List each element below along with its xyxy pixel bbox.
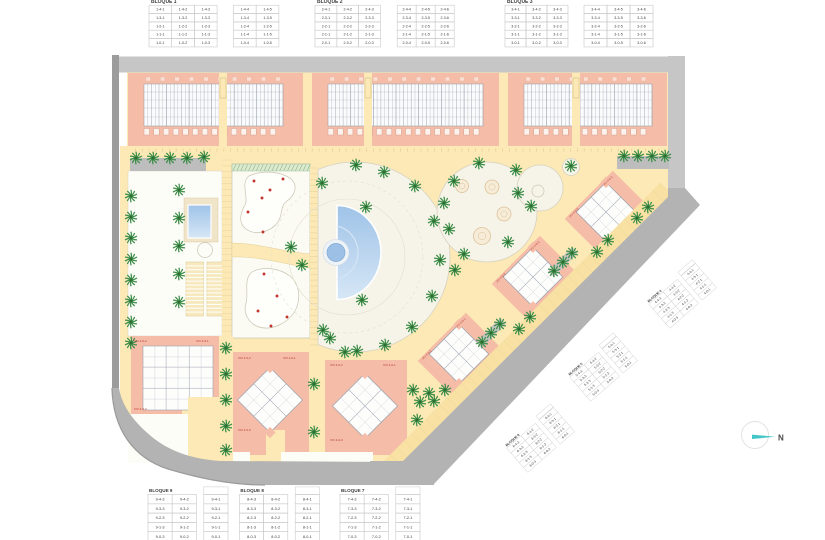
svg-text:1-0-2: 1-0-2: [179, 41, 187, 45]
svg-text:8-2-3: 8-2-3: [247, 516, 256, 520]
svg-text:3-0-3: 3-0-3: [553, 41, 561, 45]
svg-text:9-2-3: 9-2-3: [156, 516, 165, 520]
svg-text:2-2-2: 2-2-2: [344, 24, 352, 28]
svg-text:2-3-1: 2-3-1: [322, 16, 330, 20]
svg-text:2-3-2: 2-3-2: [344, 16, 352, 20]
svg-text:8-2-2: 8-2-2: [271, 516, 280, 520]
svg-text:1-3-3: 1-3-3: [202, 16, 210, 20]
svg-text:BLOQUE 3: BLOQUE 3: [507, 0, 533, 5]
svg-text:N: N: [778, 434, 784, 443]
svg-text:2-0-2: 2-0-2: [344, 41, 352, 45]
svg-text:2-4-1: 2-4-1: [322, 8, 330, 12]
svg-text:9-1-3: 9-1-3: [156, 525, 165, 529]
svg-text:9-3-3: 9-3-3: [156, 507, 165, 511]
svg-text:9-2-2: 9-2-2: [180, 516, 189, 520]
svg-text:1-1-4: 1-1-4: [241, 33, 249, 37]
svg-text:3-4-1: 3-4-1: [511, 8, 519, 12]
svg-text:2-2-6: 2-2-6: [441, 24, 449, 28]
svg-text:VIV 4-0-1: VIV 4-0-1: [383, 363, 396, 367]
svg-text:7-3-1: 7-3-1: [403, 507, 412, 511]
svg-text:1-3-2: 1-3-2: [179, 16, 187, 20]
svg-text:2-1-5: 2-1-5: [422, 33, 430, 37]
svg-text:7-4-1: 7-4-1: [403, 498, 412, 502]
svg-text:3-1-4: 3-1-4: [591, 33, 599, 37]
svg-text:9-1-1: 9-1-1: [211, 525, 220, 529]
svg-text:2-1-6: 2-1-6: [441, 33, 449, 37]
svg-text:9-0-3: 9-0-3: [156, 535, 165, 539]
svg-text:2-1-2: 2-1-2: [344, 33, 352, 37]
svg-text:2-3-3: 2-3-3: [365, 16, 373, 20]
svg-text:8-0-2: 8-0-2: [271, 535, 280, 539]
svg-text:VIV 4-0-1: VIV 4-0-1: [196, 339, 209, 343]
svg-text:3-2-2: 3-2-2: [532, 24, 540, 28]
svg-text:2-2-5: 2-2-5: [422, 24, 430, 28]
svg-text:2-1-1: 2-1-1: [322, 33, 330, 37]
svg-text:2-4-4: 2-4-4: [403, 8, 411, 12]
svg-text:3-4-2: 3-4-2: [532, 8, 540, 12]
svg-text:9-4-3: 9-4-3: [156, 498, 165, 502]
svg-text:1-3-5: 1-3-5: [263, 16, 271, 20]
svg-text:3-2-6: 3-2-6: [637, 24, 645, 28]
svg-text:7-0-1: 7-0-1: [403, 535, 412, 539]
svg-text:1-2-3: 1-2-3: [202, 24, 210, 28]
svg-text:9-3-2: 9-3-2: [180, 507, 189, 511]
svg-text:8-4-3: 8-4-3: [247, 498, 256, 502]
svg-text:3-1-5: 3-1-5: [614, 33, 622, 37]
svg-text:7-4-2: 7-4-2: [372, 498, 381, 502]
svg-text:8-1-2: 8-1-2: [271, 525, 280, 529]
svg-text:1-3-1: 1-3-1: [156, 16, 164, 20]
svg-text:3-0-1: 3-0-1: [511, 41, 519, 45]
svg-text:2-3-4: 2-3-4: [403, 16, 411, 20]
svg-text:8-0-1: 8-0-1: [303, 535, 312, 539]
svg-text:2-4-6: 2-4-6: [441, 8, 449, 12]
svg-text:2-4-3: 2-4-3: [365, 8, 373, 12]
svg-text:2-2-3: 2-2-3: [365, 24, 373, 28]
svg-text:1-0-3: 1-0-3: [202, 41, 210, 45]
svg-text:8-2-1: 8-2-1: [303, 516, 312, 520]
svg-text:2-2-1: 2-2-1: [322, 24, 330, 28]
svg-text:1-3-4: 1-3-4: [241, 16, 249, 20]
svg-text:3-0-2: 3-0-2: [532, 41, 540, 45]
svg-text:2-0-6: 2-0-6: [441, 41, 449, 45]
svg-text:1-1-2: 1-1-2: [179, 33, 187, 37]
svg-text:3-4-6: 3-4-6: [637, 8, 645, 12]
svg-text:BLOQUE 2: BLOQUE 2: [317, 0, 343, 5]
svg-text:7-0-2: 7-0-2: [372, 535, 381, 539]
svg-text:2-0-1: 2-0-1: [322, 41, 330, 45]
svg-text:VIV 4-0-0: VIV 4-0-0: [238, 428, 251, 432]
svg-text:2-0-4: 2-0-4: [403, 41, 411, 45]
svg-text:1-1-5: 1-1-5: [263, 33, 271, 37]
svg-text:3-3-6: 3-3-6: [637, 16, 645, 20]
svg-text:1-4-3: 1-4-3: [202, 8, 210, 12]
svg-text:1-1-3: 1-1-3: [202, 33, 210, 37]
svg-text:3-3-4: 3-3-4: [591, 16, 599, 20]
svg-text:1-4-5: 1-4-5: [263, 8, 271, 12]
svg-text:8-0-3: 8-0-3: [247, 535, 256, 539]
svg-text:3-1-6: 3-1-6: [637, 33, 645, 37]
svg-text:3-0-4: 3-0-4: [591, 41, 599, 45]
svg-text:VIV 4-0-2: VIV 4-0-2: [330, 363, 343, 367]
svg-text:2-2-4: 2-2-4: [403, 24, 411, 28]
svg-text:3-0-5: 3-0-5: [614, 41, 622, 45]
svg-text:8-1-1: 8-1-1: [303, 525, 312, 529]
svg-text:3-2-5: 3-2-5: [614, 24, 622, 28]
svg-text:8-3-2: 8-3-2: [271, 507, 280, 511]
svg-text:2-3-6: 2-3-6: [441, 16, 449, 20]
svg-text:3-2-1: 3-2-1: [511, 24, 519, 28]
svg-text:3-1-1: 3-1-1: [511, 33, 519, 37]
svg-text:VIV 4-0-3: VIV 4-0-3: [134, 407, 147, 411]
svg-text:9-0-2: 9-0-2: [180, 535, 189, 539]
svg-text:9-1-2: 9-1-2: [180, 525, 189, 529]
svg-text:8-4-2: 8-4-2: [271, 498, 280, 502]
svg-text:8-3-3: 8-3-3: [247, 507, 256, 511]
svg-text:9-4-1: 9-4-1: [211, 498, 220, 502]
svg-text:2-3-5: 2-3-5: [422, 16, 430, 20]
svg-text:3-2-4: 3-2-4: [591, 24, 599, 28]
svg-text:1-0-1: 1-0-1: [156, 41, 164, 45]
svg-text:2-4-5: 2-4-5: [422, 8, 430, 12]
svg-text:BLOQUE 8: BLOQUE 8: [240, 488, 264, 493]
svg-text:3-3-3: 3-3-3: [553, 16, 561, 20]
svg-text:1-2-2: 1-2-2: [179, 24, 187, 28]
svg-text:8-1-3: 8-1-3: [247, 525, 256, 529]
svg-text:2-4-2: 2-4-2: [344, 8, 352, 12]
svg-text:1-2-4: 1-2-4: [241, 24, 249, 28]
svg-text:1-0-5: 1-0-5: [263, 41, 271, 45]
svg-text:7-2-3: 7-2-3: [348, 516, 357, 520]
svg-text:3-2-3: 3-2-3: [553, 24, 561, 28]
svg-text:1-0-4: 1-0-4: [241, 41, 249, 45]
svg-text:7-2-1: 7-2-1: [403, 516, 412, 520]
svg-text:3-4-5: 3-4-5: [614, 8, 622, 12]
svg-text:1-4-4: 1-4-4: [241, 8, 249, 12]
svg-text:7-4-3: 7-4-3: [348, 498, 357, 502]
svg-text:9-3-1: 9-3-1: [211, 507, 220, 511]
svg-text:3-4-3: 3-4-3: [553, 8, 561, 12]
svg-text:3-4-4: 3-4-4: [591, 8, 599, 12]
svg-text:9-2-1: 9-2-1: [211, 516, 220, 520]
svg-text:2-0-5: 2-0-5: [422, 41, 430, 45]
svg-text:9-0-1: 9-0-1: [211, 535, 220, 539]
svg-text:8-3-1: 8-3-1: [303, 507, 312, 511]
svg-text:2-1-3: 2-1-3: [365, 33, 373, 37]
svg-text:7-1-2: 7-1-2: [372, 525, 381, 529]
svg-text:8-4-1: 8-4-1: [303, 498, 312, 502]
svg-text:1-1-1: 1-1-1: [156, 33, 164, 37]
svg-text:VIV 4-0-2: VIV 4-0-2: [134, 339, 147, 343]
svg-text:1-4-2: 1-4-2: [179, 8, 187, 12]
svg-text:1-2-5: 1-2-5: [263, 24, 271, 28]
svg-text:7-1-3: 7-1-3: [348, 525, 357, 529]
svg-text:1-2-1: 1-2-1: [156, 24, 164, 28]
svg-text:2-0-3: 2-0-3: [365, 41, 373, 45]
svg-text:7-1-1: 7-1-1: [403, 525, 412, 529]
svg-text:7-2-2: 7-2-2: [372, 516, 381, 520]
svg-text:3-0-6: 3-0-6: [637, 41, 645, 45]
svg-text:3-3-2: 3-3-2: [532, 16, 540, 20]
svg-text:7-3-3: 7-3-3: [348, 507, 357, 511]
svg-text:3-3-5: 3-3-5: [614, 16, 622, 20]
svg-text:VIV 4-0-3: VIV 4-0-3: [330, 438, 343, 442]
svg-text:7-3-2: 7-3-2: [372, 507, 381, 511]
svg-text:3-1-3: 3-1-3: [553, 33, 561, 37]
svg-text:2-1-4: 2-1-4: [403, 33, 411, 37]
svg-text:VIV 4-0-1: VIV 4-0-1: [283, 356, 296, 360]
svg-text:3-3-1: 3-3-1: [511, 16, 519, 20]
svg-text:VIV 4-0-2: VIV 4-0-2: [238, 356, 251, 360]
svg-text:9-4-2: 9-4-2: [180, 498, 189, 502]
svg-text:BLOQUE 7: BLOQUE 7: [341, 488, 365, 493]
svg-text:7-0-3: 7-0-3: [348, 535, 357, 539]
svg-text:BLOQUE 9: BLOQUE 9: [149, 488, 173, 493]
svg-text:BLOQUE 1: BLOQUE 1: [151, 0, 177, 5]
svg-text:3-1-2: 3-1-2: [532, 33, 540, 37]
svg-text:1-4-1: 1-4-1: [156, 8, 164, 12]
